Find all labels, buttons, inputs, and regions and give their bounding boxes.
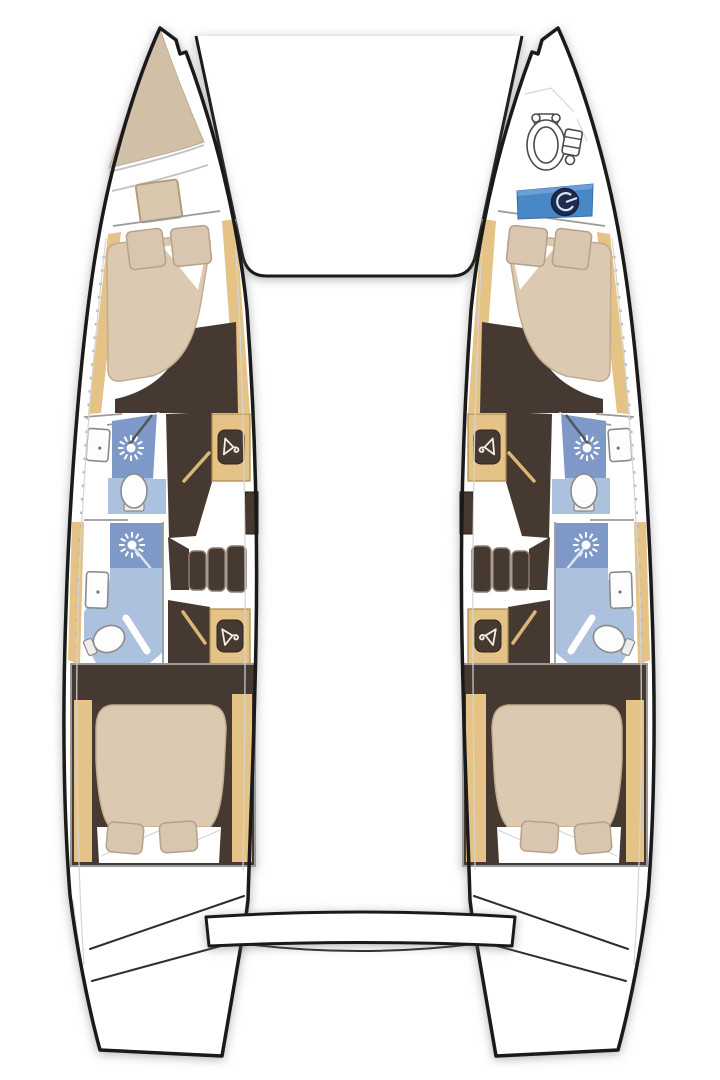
- deck-plan-stage: [0, 0, 720, 1080]
- deck-plan-canvas: [0, 0, 720, 1080]
- foredeck-bridge: [196, 36, 522, 276]
- bow-hatch: [136, 179, 183, 222]
- aft-platform: [206, 912, 515, 946]
- stern-crossmember: [246, 944, 474, 951]
